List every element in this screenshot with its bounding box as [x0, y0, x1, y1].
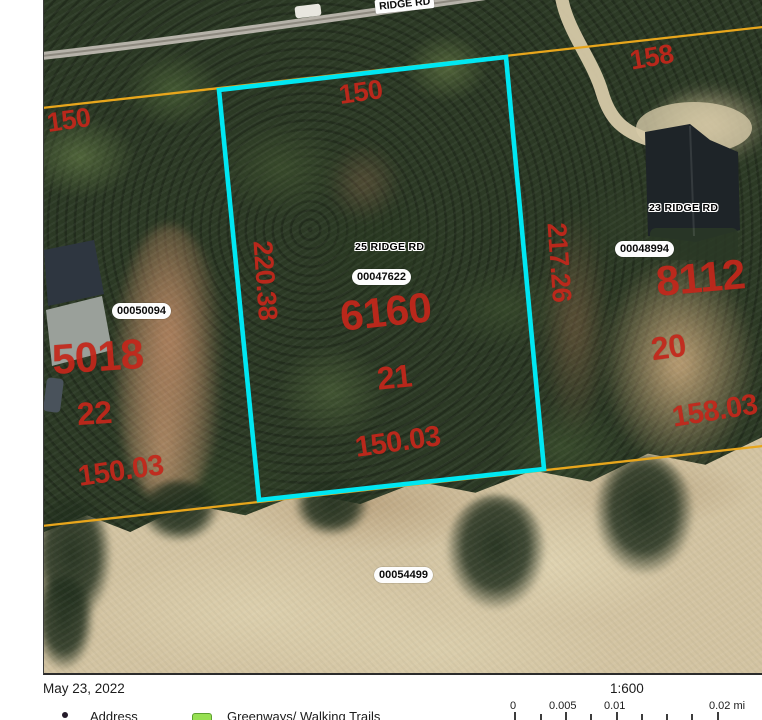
scalebar-tick: [540, 714, 542, 720]
lot-dimension-label: 217.26: [543, 222, 575, 303]
scalebar-tick: [590, 714, 592, 720]
address-label-23-ridge-rd: 23 RIDGE RD: [649, 202, 718, 214]
lot-dimension-label: 150: [337, 76, 384, 109]
house-roof-left-dark: [44, 240, 104, 306]
parcel-area-label: 6160: [338, 286, 433, 337]
parcel-map-page: RIDGE RD 25 RIDGE RD 23 RIDGE RD 0005009…: [0, 0, 762, 720]
parcel-id-badge[interactable]: 00048994: [615, 241, 674, 257]
scalebar-tick: [717, 712, 719, 720]
scalebar-tick: [565, 712, 567, 720]
map-scale-ratio: 1:600: [610, 681, 644, 696]
lot-dimension-label: 220.38: [249, 240, 281, 321]
scalebar-label-0005: 0.005: [549, 700, 577, 712]
scalebar-tick: [514, 712, 516, 720]
parcel-area-label: 8112: [654, 253, 746, 303]
scalebar-tick: [641, 714, 643, 720]
scalebar-label-002mi: 0.02 mi: [709, 700, 745, 712]
legend-item-greenways: Greenways/ Walking Trails: [227, 709, 380, 720]
scalebar-tick: [666, 714, 668, 720]
lot-number-label: 21: [375, 359, 413, 394]
parcel-area-label: 5018: [51, 333, 145, 381]
parcel-id-badge[interactable]: 00054499: [374, 567, 433, 583]
scalebar-label-001: 0.01: [604, 700, 625, 712]
address-label-25-ridge-rd: 25 RIDGE RD: [355, 241, 424, 253]
legend-item-address: Address: [90, 709, 138, 720]
lot-number-label: 22: [76, 396, 113, 430]
map-date: May 23, 2022: [43, 681, 125, 696]
greenways-swatch-icon: [192, 713, 212, 720]
scalebar-tick: [616, 712, 618, 720]
lot-dimension-label: 150: [45, 104, 92, 137]
lot-number-label: 20: [649, 329, 688, 366]
scalebar-tick: [691, 714, 693, 720]
parcel-id-badge[interactable]: 00047622: [352, 269, 411, 285]
scalebar-label-0: 0: [510, 700, 516, 712]
address-dot-icon: [62, 712, 68, 718]
parcel-id-badge[interactable]: 00050094: [112, 303, 171, 319]
